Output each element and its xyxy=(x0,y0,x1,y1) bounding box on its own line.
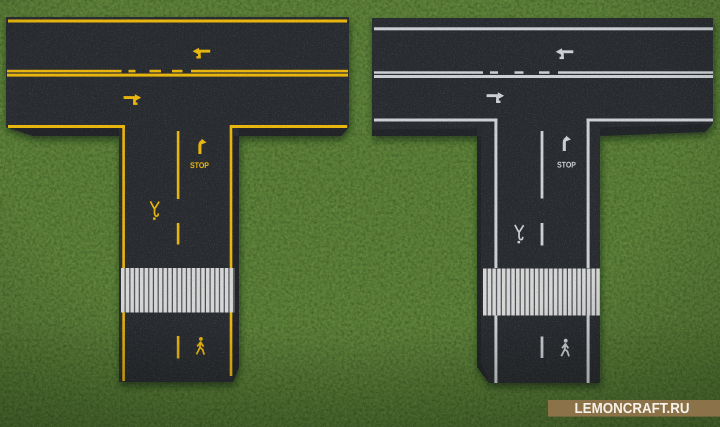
svg-text:LEMONCRAFT.RU: LEMONCRAFT.RU xyxy=(575,401,690,417)
